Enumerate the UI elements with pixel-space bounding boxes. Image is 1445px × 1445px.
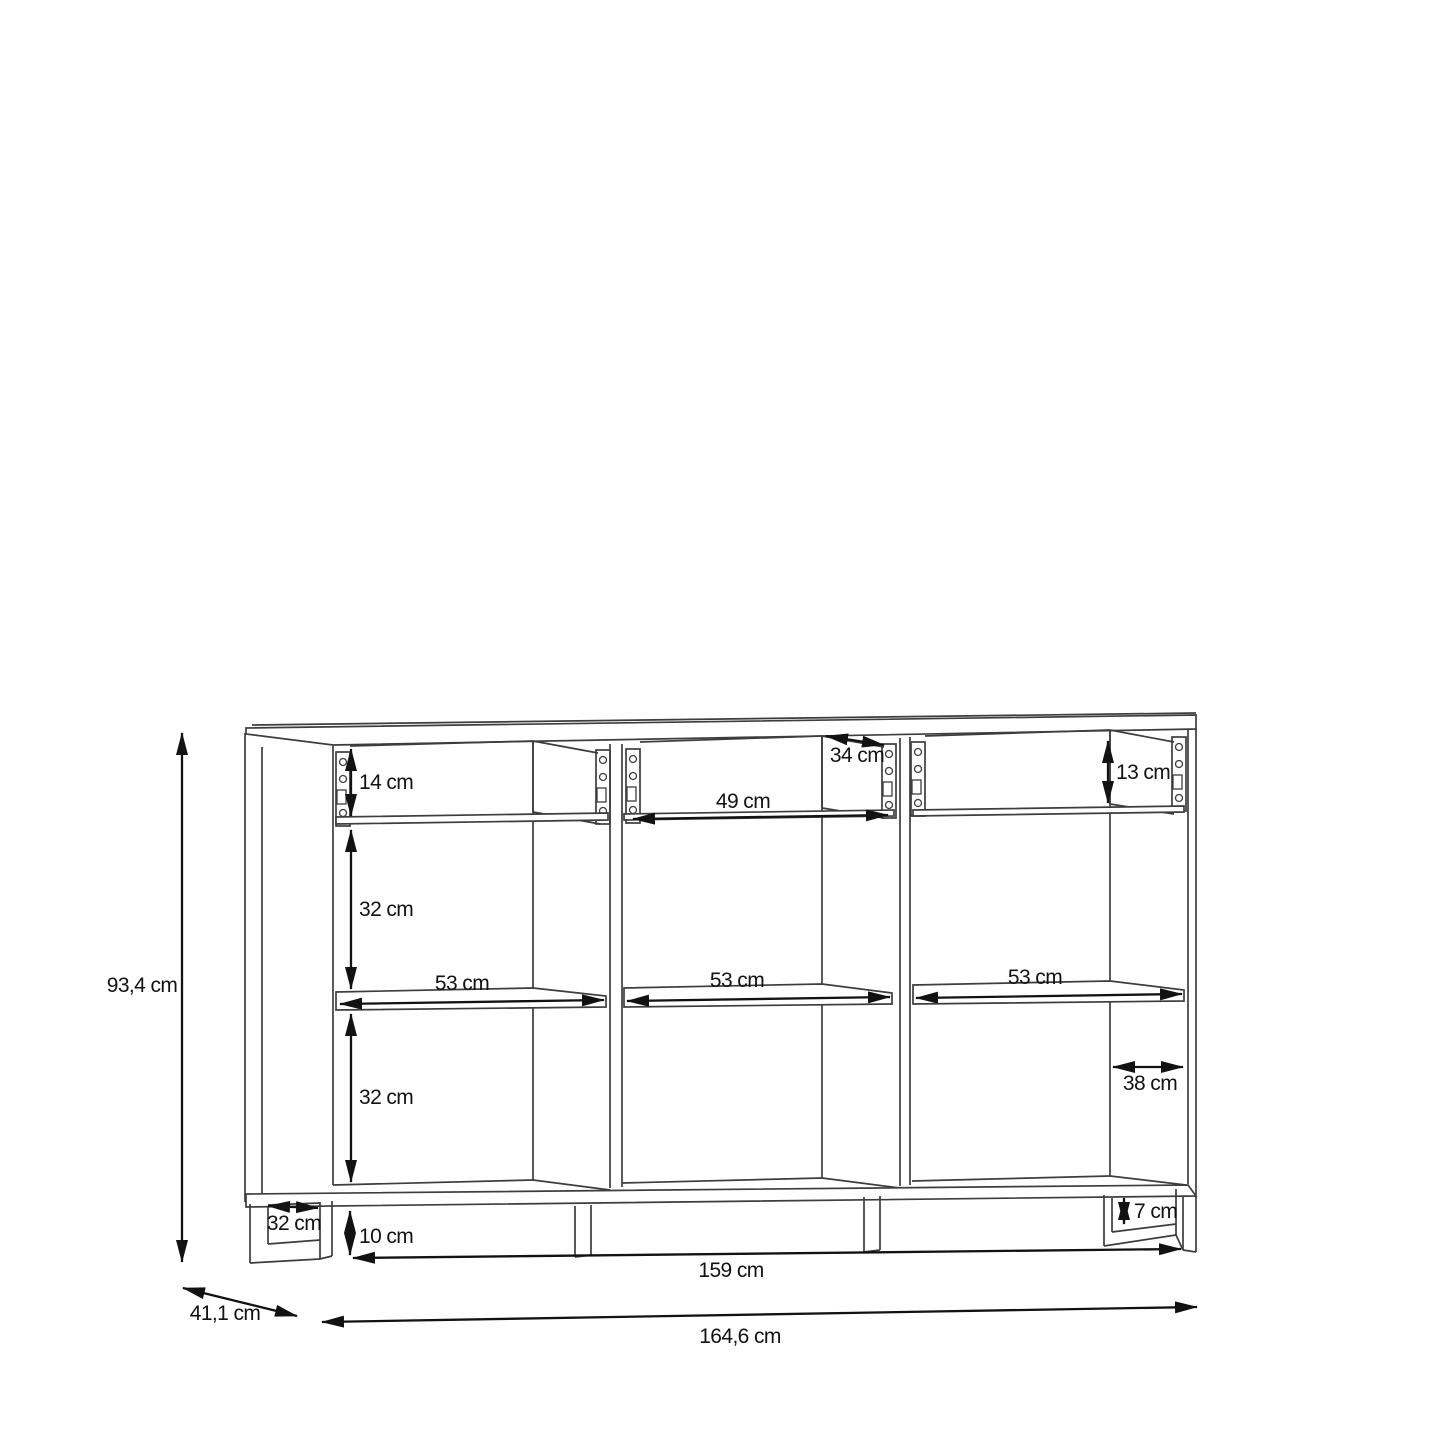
dimension-annotations: 93,4 cm 41,1 cm 164,6 cm 159 cm 14 cm 32…	[107, 733, 1197, 1348]
dim-label-plinth-depth: 32 cm	[267, 1212, 321, 1235]
dimension-drawer-left-height: 14 cm	[351, 749, 413, 816]
dimension-base-width: 159 cm	[353, 1249, 1181, 1282]
technical-drawing-page: 93,4 cm 41,1 cm 164,6 cm 159 cm 14 cm 32…	[0, 0, 1445, 1445]
dim-label-lower-compartment-height: 32 cm	[359, 1086, 413, 1109]
dimension-lower-compartment-height: 32 cm	[351, 1014, 413, 1182]
partition-right	[900, 737, 910, 1186]
dim-label-upper-compartment-height: 32 cm	[359, 898, 413, 921]
dim-label-overall-width: 164,6 cm	[699, 1325, 781, 1348]
top-board	[246, 713, 1196, 745]
dimension-drawer-right-height: 13 cm	[1108, 741, 1170, 803]
dimension-plinth-height-right: 7 cm	[1124, 1198, 1177, 1224]
drawer-bottom-panel-right	[913, 806, 1184, 816]
dim-label-shelf-left-width: 53 cm	[435, 972, 489, 995]
dimension-upper-compartment-height: 32 cm	[351, 830, 413, 989]
dimension-overall-width: 164,6 cm	[322, 1307, 1197, 1348]
dim-label-plinth-height-left: 10 cm	[359, 1225, 413, 1248]
drawer-bottom-panel-left	[336, 813, 608, 824]
drawer-slide-rail	[626, 749, 640, 823]
bottom-board	[246, 1176, 1196, 1207]
dim-label-drawer-right-height: 13 cm	[1116, 761, 1170, 784]
dim-label-shelf-right-depth: 38 cm	[1123, 1072, 1177, 1095]
dim-label-drawer-inner-width: 49 cm	[716, 790, 770, 813]
dim-label-drawer-inner-depth: 34 cm	[830, 744, 884, 767]
dimension-plinth-depth: 32 cm	[267, 1206, 321, 1235]
dim-label-overall-depth: 41,1 cm	[190, 1302, 261, 1325]
dimension-shelf-right-depth: 38 cm	[1113, 1067, 1183, 1095]
dim-label-shelf-right-width: 53 cm	[1008, 966, 1062, 989]
plinth-leg-middle-right	[864, 1196, 880, 1252]
dim-label-plinth-height-right: 7 cm	[1134, 1200, 1177, 1223]
plinth-leg-middle-left	[575, 1205, 591, 1257]
dim-label-base-width: 159 cm	[698, 1259, 763, 1282]
dimension-plinth-height-left: 10 cm	[350, 1211, 413, 1255]
drawer-slide-rail	[1172, 737, 1186, 811]
dim-label-drawer-left-height: 14 cm	[359, 771, 413, 794]
drawer-slide-rail	[336, 752, 350, 826]
sideboard-dimension-diagram: 93,4 cm 41,1 cm 164,6 cm 159 cm 14 cm 32…	[0, 0, 1445, 1445]
dim-label-shelf-middle-width: 53 cm	[710, 969, 764, 992]
dimension-drawer-inner-depth: 34 cm	[826, 736, 884, 767]
drawer-slide-rail	[911, 742, 925, 816]
left-side-panel	[245, 733, 333, 1202]
partition-left	[610, 744, 622, 1188]
dim-label-overall-height: 93,4 cm	[107, 974, 178, 997]
right-side-panel	[1183, 729, 1196, 1252]
dimension-overall-height: 93,4 cm	[107, 733, 182, 1262]
dimension-overall-depth: 41,1 cm	[183, 1288, 297, 1325]
drawer-slide-rail	[882, 744, 896, 818]
